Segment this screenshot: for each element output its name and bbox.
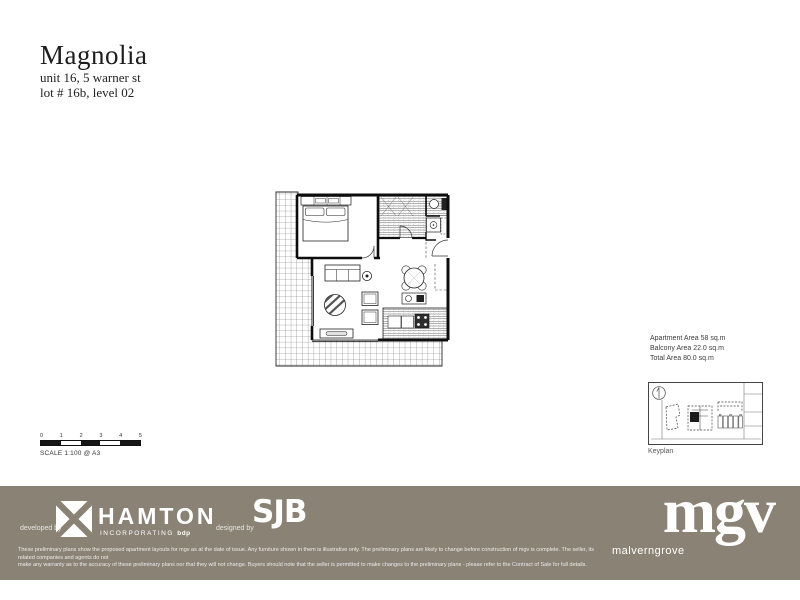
hamton-incorporating: INCORPORATING bdp bbox=[100, 530, 191, 537]
title-block: Magnolia unit 16, 5 warner st lot # 16b,… bbox=[40, 40, 147, 100]
incorporating-label: INCORPORATING bbox=[100, 530, 174, 537]
scale-ticks: 0 1 2 3 4 5 bbox=[40, 433, 142, 440]
total-area: Total Area 80.0 sq.m bbox=[650, 354, 725, 364]
cistern bbox=[442, 198, 447, 210]
toilet bbox=[430, 200, 439, 209]
vanity bbox=[427, 218, 441, 232]
page-title: Magnolia bbox=[40, 40, 147, 70]
floor-plan bbox=[268, 188, 460, 377]
keyplan-label: Keyplan bbox=[648, 448, 673, 455]
armchair bbox=[362, 310, 378, 325]
highlighted-unit bbox=[690, 412, 699, 422]
kitchen-sink bbox=[388, 316, 401, 328]
tv-unit bbox=[320, 329, 353, 338]
floor-plan-drawing bbox=[268, 188, 460, 372]
lot-level: lot # 16b, level 02 bbox=[40, 85, 147, 100]
keyplan bbox=[648, 382, 763, 450]
scale-bar: 0 1 2 3 4 5 SCALE 1:100 @ A3 bbox=[40, 433, 142, 457]
malverngrove-label: malverngrove bbox=[612, 545, 685, 557]
hamton-logo-icon bbox=[56, 501, 92, 542]
disclaimer: These preliminary plans show the propose… bbox=[18, 547, 604, 570]
mgv-logo: mgv malverngrove bbox=[596, 488, 774, 574]
armchair bbox=[362, 292, 378, 306]
balcony-area: Balcony Area 22.0 sq.m bbox=[650, 344, 725, 354]
bdp-label: bdp bbox=[177, 530, 190, 537]
apartment-area: Apartment Area 58 sq.m bbox=[650, 334, 725, 344]
sofa bbox=[325, 265, 360, 281]
island-bench bbox=[402, 293, 426, 304]
unit-address: unit 16, 5 warner st bbox=[40, 70, 147, 85]
designed-by-label: designed by bbox=[216, 525, 254, 532]
bed bbox=[303, 206, 348, 241]
scale-tick: 5 bbox=[139, 433, 142, 439]
dining-set bbox=[402, 266, 426, 290]
hamton-logo-text: HAMTON bbox=[98, 503, 217, 530]
scale-tick: 4 bbox=[119, 433, 122, 439]
scale-tick: 0 bbox=[40, 433, 43, 439]
area-schedule: Apartment Area 58 sq.m Balcony Area 22.0… bbox=[650, 334, 725, 364]
plan-sheet: Magnolia unit 16, 5 warner st lot # 16b,… bbox=[0, 0, 800, 600]
scale-bar-graphic bbox=[40, 440, 141, 446]
bedroom bbox=[301, 197, 351, 242]
scale-tick: 2 bbox=[80, 433, 83, 439]
wardrobe bbox=[301, 197, 351, 206]
cooktop bbox=[415, 314, 429, 328]
footer: developed by HAMTON INCORPORATING bdp de… bbox=[0, 486, 800, 580]
disclaimer-line: make any warranty as to the accuracy of … bbox=[18, 562, 604, 570]
scale-tick: 1 bbox=[60, 433, 63, 439]
sjb-logo: SJB bbox=[252, 494, 307, 530]
ceiling-point bbox=[362, 271, 371, 280]
scale-label: SCALE 1:100 @ A3 bbox=[40, 450, 142, 457]
scale-tick: 3 bbox=[99, 433, 102, 439]
mgv-logo-text: mgv bbox=[663, 474, 774, 548]
disclaimer-line: These preliminary plans show the propose… bbox=[18, 547, 604, 562]
keyplan-drawing bbox=[648, 382, 763, 445]
